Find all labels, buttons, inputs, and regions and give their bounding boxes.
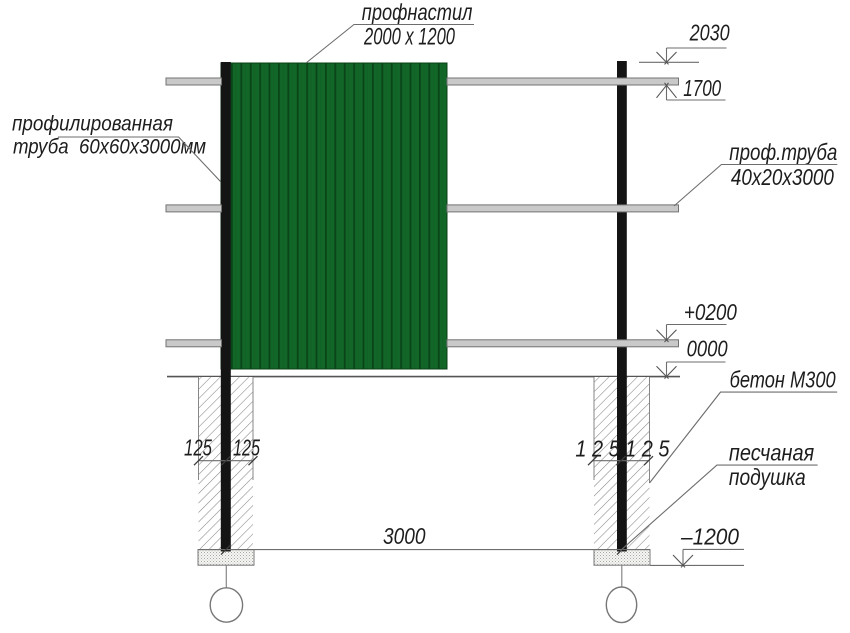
svg-text:профнастил: профнастил [362,0,473,25]
svg-text:1 2 5 1 2 5: 1 2 5 1 2 5 [575,436,669,462]
svg-text:песчаная: песчаная [729,440,814,466]
svg-text:3000: 3000 [383,523,426,549]
svg-text:+0200: +0200 [684,299,737,325]
svg-text:125: 125 [233,435,260,461]
svg-text:2030: 2030 [689,20,730,46]
svg-text:–1200: –1200 [680,523,739,549]
svg-text:проф.труба: проф.труба [729,139,837,165]
svg-text:40х20х3000: 40х20х3000 [731,164,834,190]
svg-text:труба 60х60х3000мм: труба 60х60х3000мм [13,136,206,159]
svg-text:бетон М300: бетон М300 [730,366,836,392]
svg-text:подушка: подушка [729,464,806,490]
svg-text:профилированная: профилированная [12,113,173,136]
svg-text:2000 х 1200: 2000 х 1200 [363,24,455,51]
svg-text:125: 125 [184,435,212,461]
svg-text:1700: 1700 [683,75,721,101]
svg-text:0000: 0000 [687,335,728,361]
